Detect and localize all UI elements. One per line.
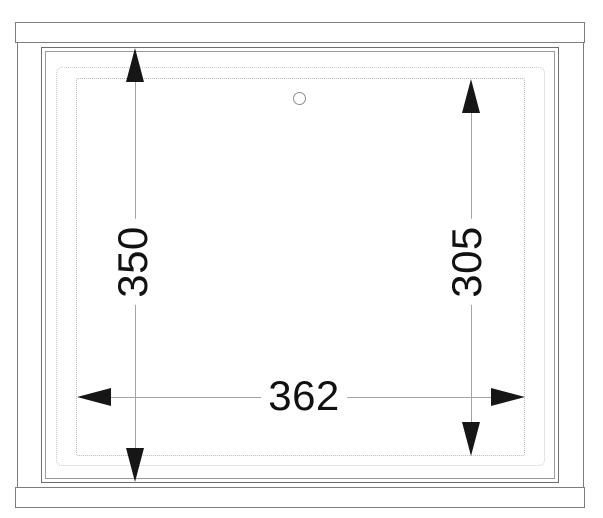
dim-305-arrow-down-icon [462, 422, 480, 456]
bottom-rail [15, 487, 585, 508]
right-stile-line [583, 43, 585, 487]
dim-350-arrow-down-icon [126, 448, 144, 482]
dim-362-arrow-right-icon [491, 388, 525, 406]
dim-350-label: 350 [112, 219, 154, 305]
drawing-canvas: 350 305 362 [0, 0, 603, 518]
drill-hole [293, 92, 306, 105]
dim-305-arrow-up-icon [462, 79, 480, 113]
dim-350-arrow-up-icon [126, 48, 144, 82]
dim-362-label: 362 [261, 375, 347, 417]
dim-362-arrow-left-icon [77, 388, 111, 406]
left-stile-line [17, 43, 19, 487]
dim-305-label: 305 [446, 219, 488, 305]
top-rail [15, 22, 585, 43]
